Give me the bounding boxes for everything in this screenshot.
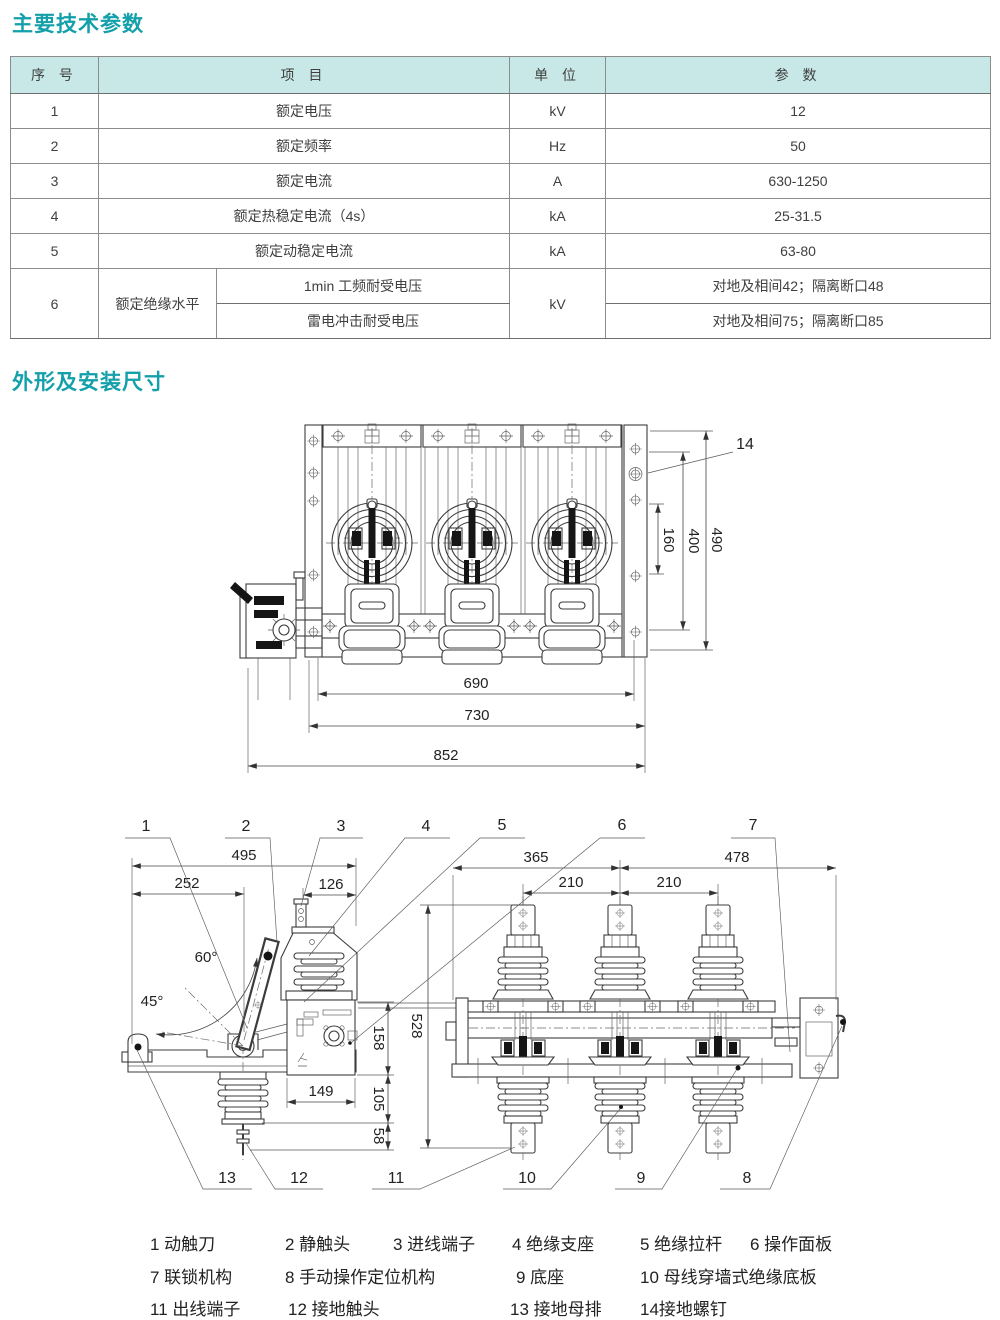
param-group: 额定绝缘水平 [99,269,217,339]
dim-252: 252 [174,875,199,892]
legend-item: 5 绝缘拉杆 [640,1230,722,1255]
param-unit: A [510,164,606,199]
legend-item: 3 进线端子 [393,1230,475,1255]
param-value: 63-80 [606,234,991,269]
dim-690: 690 [463,675,488,692]
legend-item: 11 出线端子 [150,1295,240,1320]
dim-149: 149 [308,1083,333,1100]
page-title-parameters: 主要技术参数 [12,8,144,38]
dim-160: 160 [660,527,677,552]
table-row: 1 额定电压 kV 12 [11,94,991,129]
param-item: 额定热稳定电流（4s） [99,199,510,234]
callout-11: 11 [388,1170,405,1187]
param-no: 6 [11,269,99,339]
param-unit: Hz [510,129,606,164]
legend-item: 6 操作面板 [750,1230,832,1255]
callout-10: 10 [518,1170,536,1187]
dim-126: 126 [318,876,343,893]
param-value: 630-1250 [606,164,991,199]
legend-item: 9 底座 [516,1263,564,1288]
param-value: 对地及相间42；隔离断口48 [606,269,991,304]
page-title-dimensions: 外形及安装尺寸 [12,366,166,396]
callout-13: 13 [218,1170,236,1187]
dim-angle-45: 45° [141,993,164,1010]
dim-528: 528 [408,1013,425,1038]
datasheet-page: { "page": {"title1": "主要技术参数", "title2":… [0,0,1000,1318]
col-header-item: 项 目 [99,57,510,94]
param-subitem: 雷电冲击耐受电压 [217,304,510,339]
dim-490: 490 [708,527,725,552]
dim-210-b: 210 [656,874,681,891]
callout-2: 2 [242,818,251,835]
dim-105: 105 [370,1086,387,1111]
param-item: 额定电压 [99,94,510,129]
param-value: 25-31.5 [606,199,991,234]
legend-item: 2 静触头 [285,1230,350,1255]
callout-3: 3 [337,818,346,835]
dim-400: 400 [685,528,702,553]
col-header-value: 参 数 [606,57,991,94]
operating-panel [287,1000,357,1075]
parameters-table: 序 号 项 目 单 位 参 数 1 额定电压 kV 12 2 额定频率 Hz 5… [10,56,991,339]
param-subitem: 1min 工频耐受电压 [217,269,510,304]
table-row: 2 额定频率 Hz 50 [11,129,991,164]
dim-58: 58 [370,1128,387,1145]
table-row: 3 额定电流 A 630-1250 [11,164,991,199]
param-no: 3 [11,164,99,199]
table-header-row: 序 号 项 目 单 位 参 数 [11,57,991,94]
table-row: 6 额定绝缘水平 1min 工频耐受电压 kV 对地及相间42；隔离断口48 [11,269,991,304]
callout-12: 12 [290,1170,308,1187]
param-value: 50 [606,129,991,164]
dim-478: 478 [724,849,749,866]
dim-495: 495 [231,847,256,864]
legend-item: 13 接地母排 [510,1295,602,1320]
col-header-no: 序 号 [11,57,99,94]
side-view-drawing: 60° 45° [0,800,1000,1220]
table-row: 4 额定热稳定电流（4s） kA 25-31.5 [11,199,991,234]
callout-9: 9 [637,1170,646,1187]
legend-item: 10 母线穿墙式绝缘底板 [640,1263,817,1288]
dim-angle-60: 60° [195,949,218,966]
dim-158: 158 [370,1025,387,1050]
param-value: 对地及相间75；隔离断口85 [606,304,991,339]
legend-item: 12 接地触头 [288,1295,380,1320]
legend-item: 8 手动操作定位机构 [285,1263,435,1288]
legend-item: 14接地螺钉 [640,1295,727,1320]
param-item: 额定电流 [99,164,510,199]
dim-210-a: 210 [558,874,583,891]
callout-1: 1 [142,818,151,835]
callout-6: 6 [618,817,627,834]
param-unit: kV [510,269,606,339]
param-item: 额定频率 [99,129,510,164]
dim-852: 852 [433,747,458,764]
param-unit: kA [510,199,606,234]
front-view-drawing: 160 400 490 14 690 730 852 [0,400,1000,800]
param-no: 5 [11,234,99,269]
col-header-unit: 单 位 [510,57,606,94]
callout-5: 5 [498,817,507,834]
pole-side-view: 60° 45° [122,899,357,1160]
switch-front-view [230,424,647,700]
param-no: 1 [11,94,99,129]
callout-7: 7 [749,817,758,834]
legend-item: 7 联锁机构 [150,1263,232,1288]
param-unit: kV [510,94,606,129]
param-item: 额定动稳定电流 [99,234,510,269]
callout-4: 4 [422,818,431,835]
param-no: 2 [11,129,99,164]
param-unit: kA [510,234,606,269]
callout-8: 8 [743,1170,752,1187]
front-view-dimensions: 160 400 490 14 690 730 852 [248,431,754,773]
param-no: 4 [11,199,99,234]
param-value: 12 [606,94,991,129]
dim-365: 365 [523,849,548,866]
legend-item: 1 动触刀 [150,1230,215,1255]
table-row: 5 额定动稳定电流 kA 63-80 [11,234,991,269]
dim-730: 730 [464,707,489,724]
callout-14: 14 [736,436,754,453]
three-pole-side-view [358,896,846,1162]
legend-item: 4 绝缘支座 [512,1230,594,1255]
